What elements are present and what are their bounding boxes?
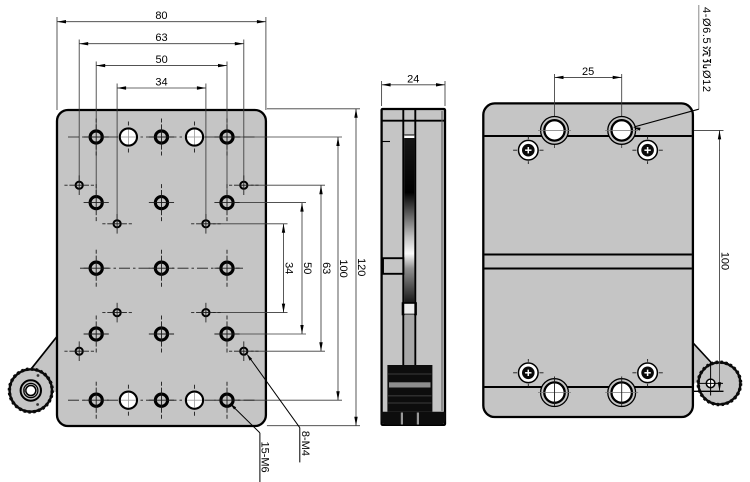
svg-text:24: 24 (407, 73, 419, 85)
svg-text:100: 100 (337, 259, 349, 277)
svg-text:120: 120 (355, 258, 367, 276)
svg-text:100: 100 (719, 252, 731, 270)
svg-text:Ø12: Ø12 (700, 70, 712, 93)
svg-text:4-Ø6.5: 4-Ø6.5 (700, 7, 712, 44)
svg-text:34: 34 (155, 77, 167, 89)
svg-text:50: 50 (301, 262, 313, 274)
svg-text:50: 50 (155, 54, 167, 66)
svg-text:34: 34 (283, 262, 295, 274)
svg-text:25: 25 (582, 66, 594, 78)
svg-text:80: 80 (155, 10, 167, 22)
svg-text:15-M6: 15-M6 (259, 442, 271, 473)
svg-text:63: 63 (155, 32, 167, 44)
svg-text:63: 63 (320, 262, 332, 274)
svg-text:8-M4: 8-M4 (299, 431, 311, 456)
